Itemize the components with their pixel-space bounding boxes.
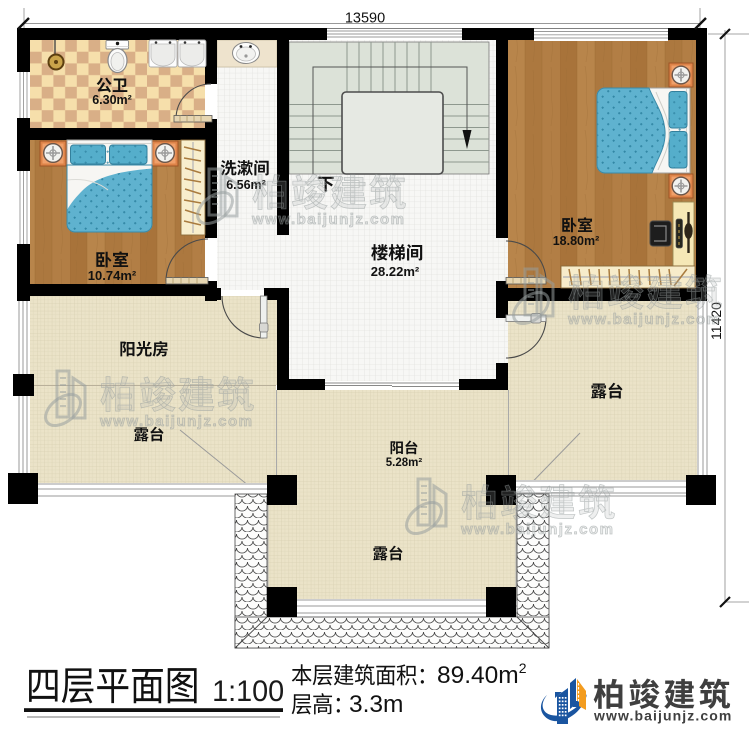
svg-text:28.22m²: 28.22m² (371, 264, 420, 279)
svg-text:1:100: 1:100 (212, 674, 284, 708)
svg-text:18.80m²: 18.80m² (553, 234, 600, 248)
svg-text:www.baijunjz.com: www.baijunjz.com (593, 708, 732, 724)
svg-text:89.40m2: 89.40m2 (437, 660, 527, 689)
svg-text:10.74m²: 10.74m² (88, 268, 137, 283)
svg-text:6.30m²: 6.30m² (92, 93, 132, 107)
svg-text:5.28m²: 5.28m² (386, 457, 423, 469)
svg-text:3.3m: 3.3m (349, 691, 403, 718)
svg-text:13590: 13590 (345, 11, 385, 27)
svg-text:www.baijunjz.com: www.baijunjz.com (251, 211, 405, 228)
